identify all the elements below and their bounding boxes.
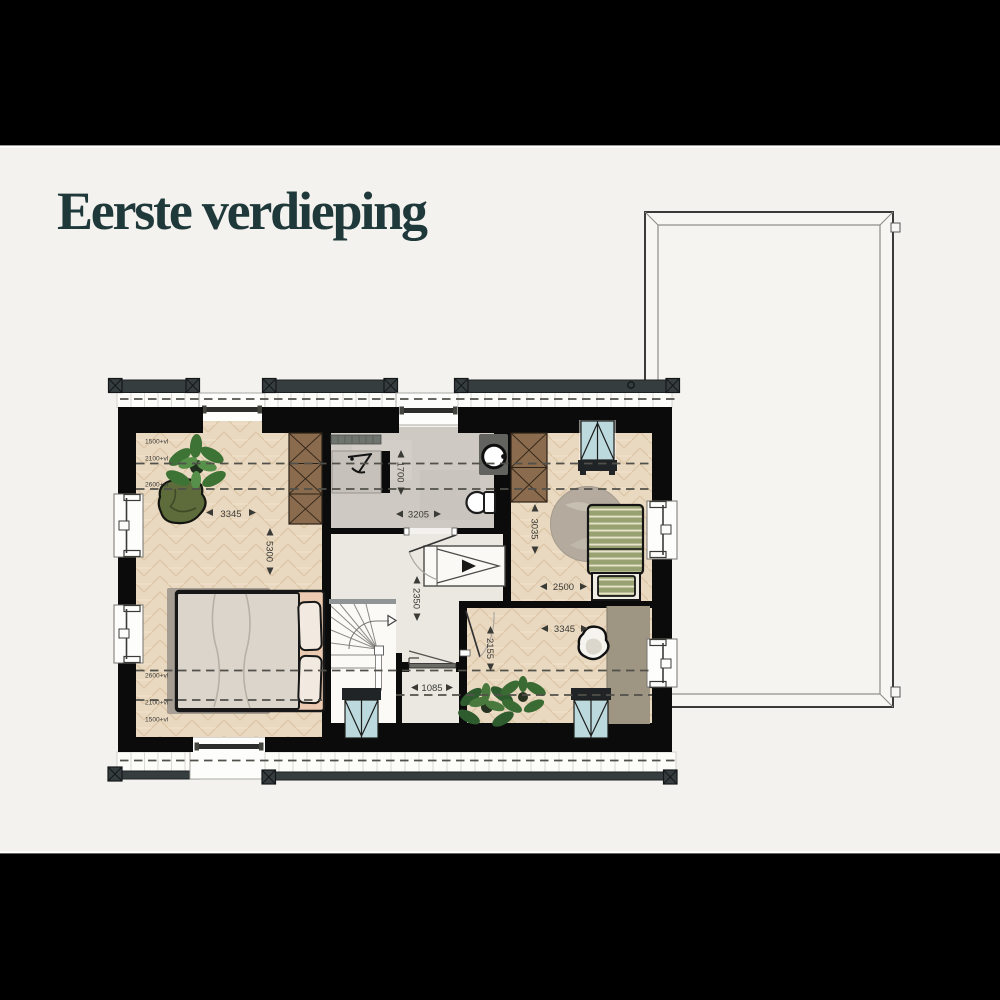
svg-text:3345: 3345 xyxy=(220,509,241,520)
svg-text:2100+vl: 2100+vl xyxy=(145,456,169,463)
svg-text:3345: 3345 xyxy=(554,624,575,635)
svg-text:1700: 1700 xyxy=(395,461,406,482)
svg-text:2350: 2350 xyxy=(411,588,422,609)
svg-text:2155: 2155 xyxy=(484,638,495,659)
svg-text:1500+vl: 1500+vl xyxy=(145,717,169,724)
svg-text:2100+vl: 2100+vl xyxy=(145,700,169,707)
svg-text:1500+vl: 1500+vl xyxy=(145,439,169,446)
svg-text:2600+vl: 2600+vl xyxy=(145,673,169,680)
svg-text:1085: 1085 xyxy=(421,683,442,694)
svg-text:2500: 2500 xyxy=(553,582,574,593)
svg-text:3035: 3035 xyxy=(529,518,540,539)
svg-text:5300: 5300 xyxy=(264,541,275,562)
svg-text:Eerste verdieping: Eerste verdieping xyxy=(57,181,428,241)
svg-text:3205: 3205 xyxy=(408,510,429,521)
svg-text:2600+vl: 2600+vl xyxy=(145,482,169,489)
